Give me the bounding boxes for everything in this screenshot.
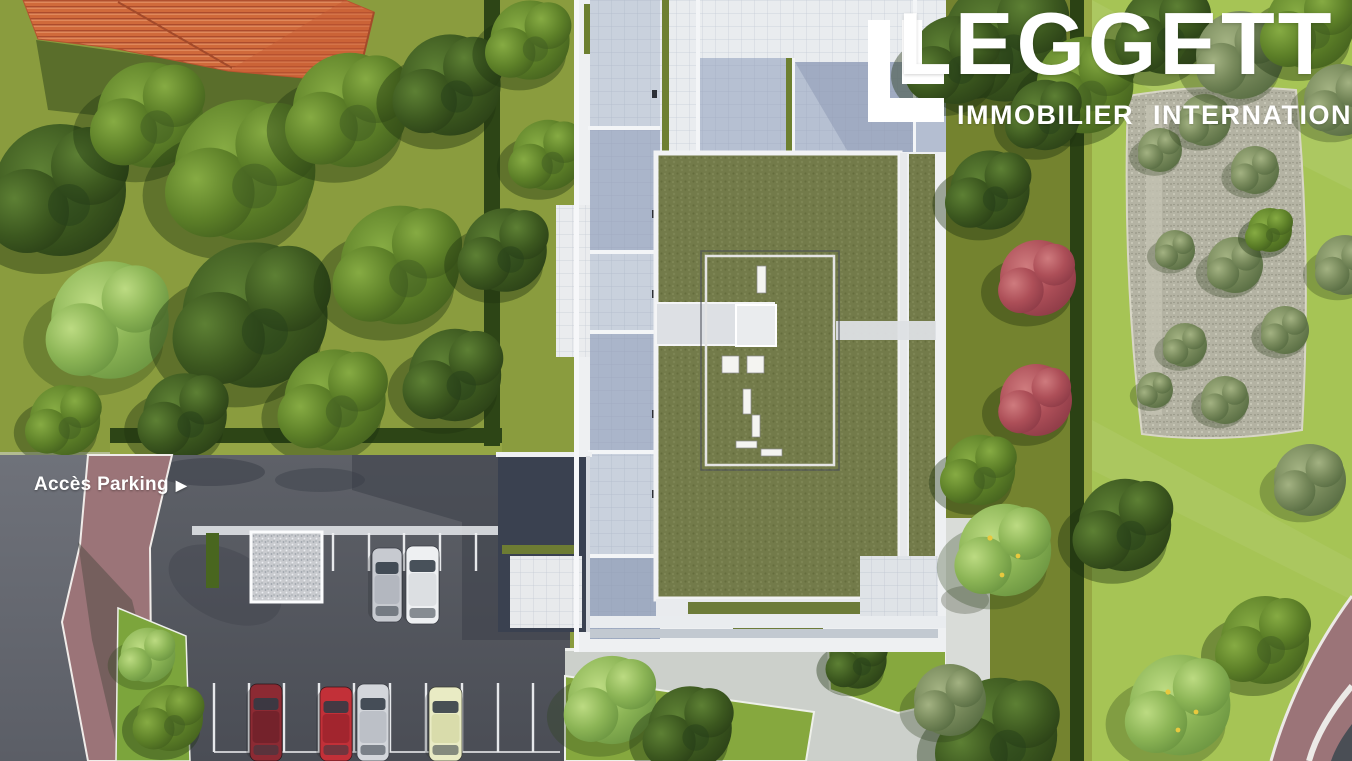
acces-parking-label: Accès Parking ▶ xyxy=(34,474,187,496)
parked-car xyxy=(425,687,463,761)
aerial-site-render: LEGGETT IMMOBILIER INTERNATIONAL Accès P… xyxy=(0,0,1352,761)
gravel-pad xyxy=(251,532,322,602)
planting-strip xyxy=(206,533,219,588)
parked-car xyxy=(402,546,440,624)
parked-car xyxy=(316,687,353,761)
leggett-logo: LEGGETT IMMOBILIER INTERNATIONAL xyxy=(856,12,1348,146)
acces-parking-text: Accès Parking xyxy=(34,474,169,496)
planter-strip xyxy=(786,58,792,152)
parked-car xyxy=(368,548,403,622)
logo-wordmark: LEGGETT xyxy=(898,0,1335,88)
planter-strip xyxy=(662,0,669,152)
left-garden xyxy=(0,0,585,468)
parking-lot xyxy=(0,455,570,761)
logo-subtitle: IMMOBILIER INTERNATIONAL xyxy=(957,100,1352,131)
parked-car xyxy=(353,684,390,761)
parked-car xyxy=(246,684,283,761)
arrow-right-icon: ▶ xyxy=(176,478,187,492)
